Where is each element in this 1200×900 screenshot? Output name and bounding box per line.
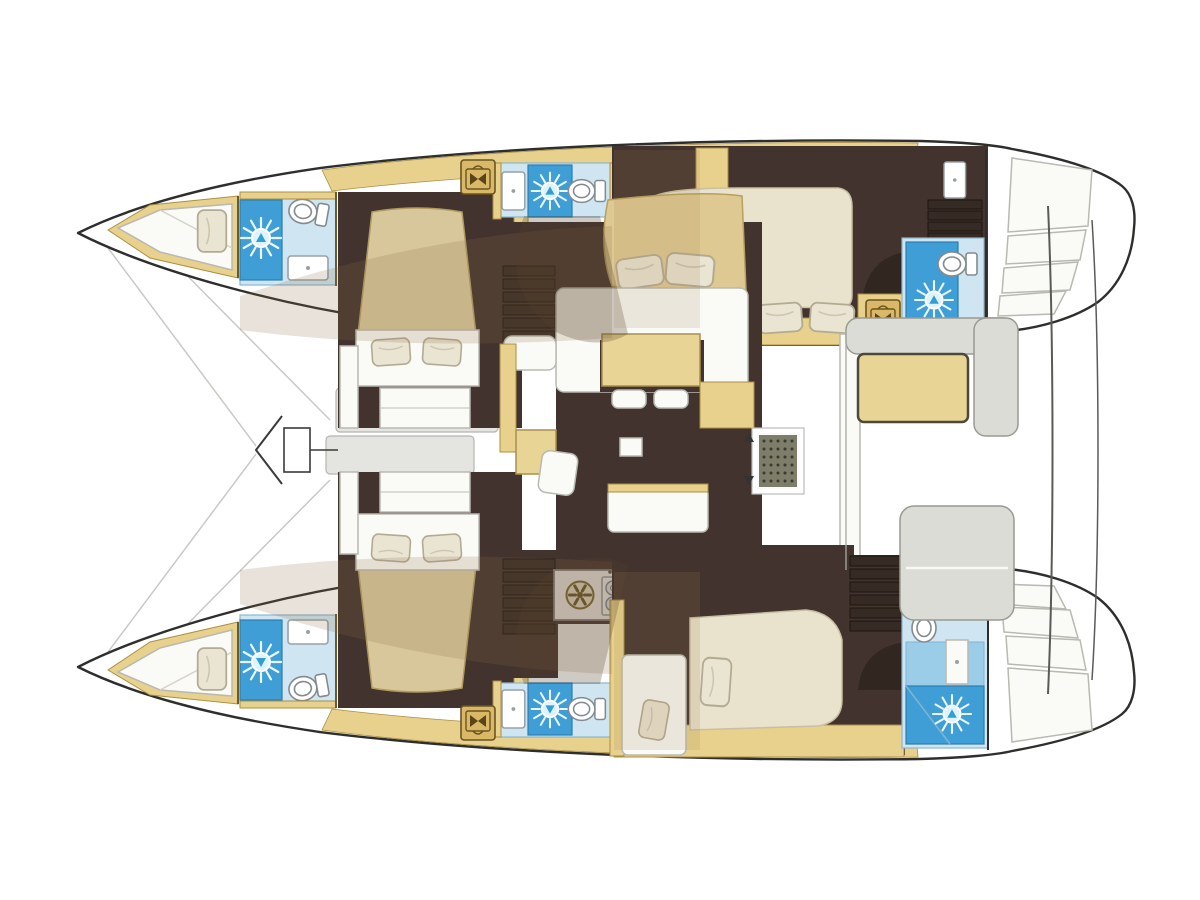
cockpit-bench [974,318,1018,436]
toilet-icon [938,252,977,276]
dinette-table [602,334,700,386]
deck-panel [326,436,474,474]
aft-seat [900,506,1014,620]
nav-seat [537,450,578,497]
vent-grate [744,428,804,494]
pillow [757,302,803,334]
pillow [700,657,732,706]
catamaran-floorplan-image [0,0,1200,900]
stool [612,390,646,408]
mast-fitting [256,416,282,484]
sofa-cushion [615,254,664,290]
sofa-cushion [665,252,715,287]
stool [654,390,688,408]
kitchen-island [608,488,708,532]
pillow [638,699,670,741]
cabinet [700,382,754,428]
floor-hatch [620,438,642,456]
cockpit-table [858,354,968,422]
sink-icon [944,162,966,198]
floorplan-svg [0,0,1200,900]
burner-icon [567,582,594,609]
mast-step [284,428,310,472]
